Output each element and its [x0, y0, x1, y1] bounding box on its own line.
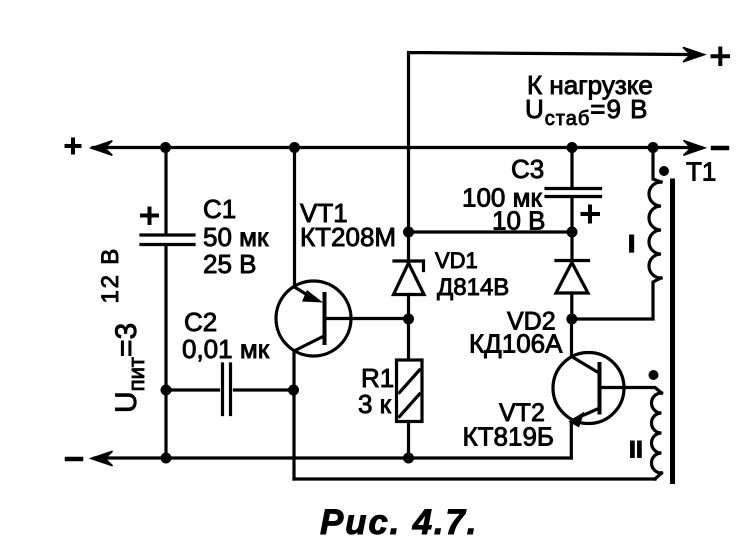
svg-text:50 мк: 50 мк [203, 222, 269, 252]
svg-text:25 В: 25 В [203, 249, 257, 279]
svg-text:C3: C3 [511, 154, 544, 184]
svg-text:VD1: VD1 [435, 248, 478, 273]
svg-text:12 В: 12 В [97, 247, 124, 304]
svg-text:КТ819Б: КТ819Б [463, 422, 554, 452]
svg-text:0,01 мк: 0,01 мк [182, 334, 270, 364]
svg-text:КД106А: КД106А [469, 329, 563, 359]
svg-text:10 В: 10 В [492, 206, 546, 236]
svg-text:Д814В: Д814В [437, 274, 509, 301]
svg-text:Рис. 4.7.: Рис. 4.7. [320, 503, 478, 542]
svg-text:3 к: 3 к [358, 389, 392, 419]
svg-text:C2: C2 [184, 307, 217, 337]
svg-text:C1: C1 [203, 194, 236, 224]
svg-text:КТ208М: КТ208М [300, 222, 396, 252]
svg-text:T1: T1 [686, 157, 716, 187]
